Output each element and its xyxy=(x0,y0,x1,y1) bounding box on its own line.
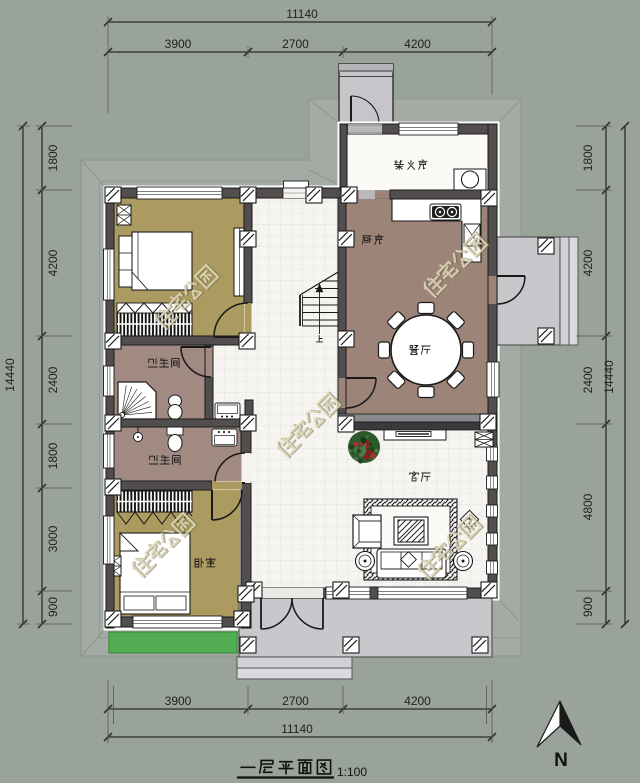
svg-text:3900: 3900 xyxy=(165,37,192,51)
svg-text:1800: 1800 xyxy=(581,144,595,171)
svg-text:4200: 4200 xyxy=(404,694,431,708)
svg-text:4200: 4200 xyxy=(46,249,60,276)
svg-text:900: 900 xyxy=(46,597,60,617)
svg-text:900: 900 xyxy=(581,597,595,617)
svg-text:1800: 1800 xyxy=(46,144,60,171)
svg-text:3900: 3900 xyxy=(165,694,192,708)
svg-text:4800: 4800 xyxy=(581,493,595,520)
svg-text:11140: 11140 xyxy=(286,7,318,21)
svg-text:2700: 2700 xyxy=(282,37,309,51)
svg-text:2400: 2400 xyxy=(46,366,60,393)
svg-text:2400: 2400 xyxy=(581,366,595,393)
svg-text:3000: 3000 xyxy=(46,525,60,552)
svg-text:1800: 1800 xyxy=(46,442,60,469)
svg-text:1:100: 1:100 xyxy=(337,765,367,779)
svg-text:4200: 4200 xyxy=(404,37,431,51)
svg-text:11140: 11140 xyxy=(281,722,313,736)
svg-text:14440: 14440 xyxy=(602,360,616,394)
svg-text:4200: 4200 xyxy=(581,249,595,276)
svg-text:N: N xyxy=(554,750,568,771)
svg-text:14440: 14440 xyxy=(3,358,17,392)
svg-text:2700: 2700 xyxy=(282,694,309,708)
